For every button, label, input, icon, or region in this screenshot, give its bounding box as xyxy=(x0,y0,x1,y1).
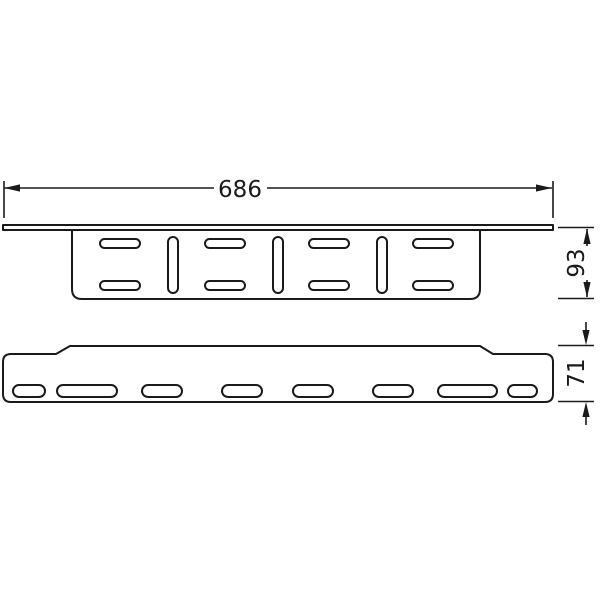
slot-hole xyxy=(142,385,182,397)
top-view-flange-bar xyxy=(3,225,553,230)
slot-hole-vertical xyxy=(273,237,283,293)
bracket-dimension-drawing: 686 xyxy=(0,0,600,600)
slot-hole xyxy=(57,385,117,397)
top-view-bracket xyxy=(3,225,553,299)
slot-hole xyxy=(373,385,413,397)
slot-hole xyxy=(293,385,333,397)
slot-hole-vertical xyxy=(377,237,387,293)
slot-hole xyxy=(508,385,537,397)
dimension-label-upper-height: 93 xyxy=(564,248,590,277)
slot-hole xyxy=(438,385,497,397)
slot-hole xyxy=(205,281,245,290)
slot-hole xyxy=(413,239,453,248)
slot-hole xyxy=(13,385,45,397)
slot-hole xyxy=(222,385,262,397)
slot-hole xyxy=(205,239,245,248)
technical-drawing-canvas: 686 xyxy=(0,0,600,600)
slot-hole xyxy=(100,239,140,248)
slot-hole xyxy=(413,281,453,290)
slot-hole-vertical xyxy=(168,237,178,293)
dimension-label-lower-height: 71 xyxy=(564,358,590,387)
slot-hole xyxy=(309,239,349,248)
dimension-label-overall-width: 686 xyxy=(218,177,262,203)
bottom-view-bracket xyxy=(3,346,553,402)
slot-hole xyxy=(100,281,140,290)
slot-hole xyxy=(309,281,349,290)
